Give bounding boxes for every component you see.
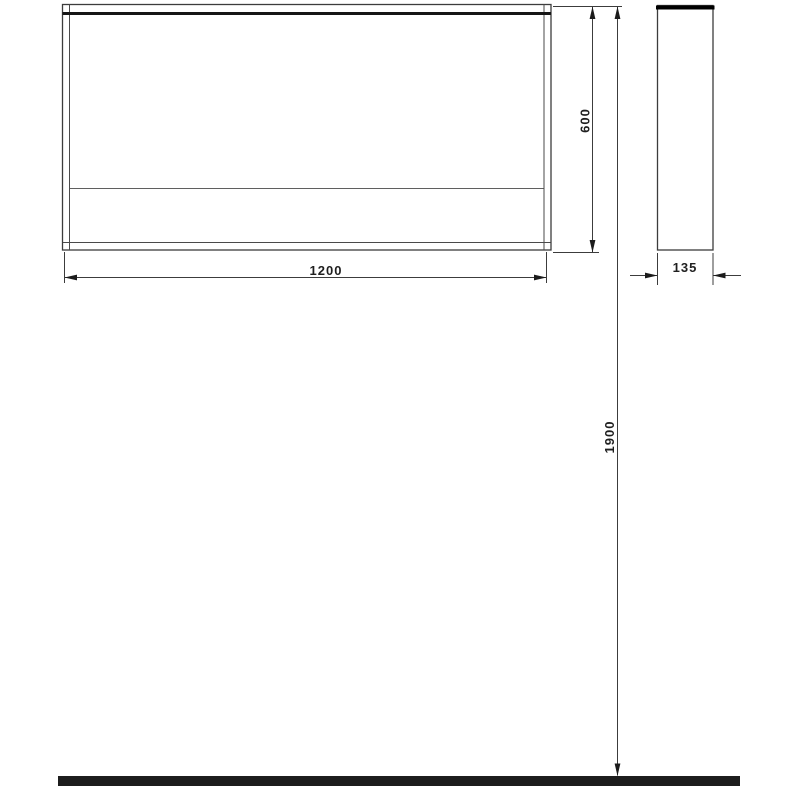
- side-view-outline: [658, 6, 714, 251]
- height-arrow-bottom: [590, 240, 596, 253]
- floor-line: [58, 776, 740, 786]
- height-arrow-top: [590, 7, 596, 20]
- front-view-outline: [63, 5, 552, 251]
- drawing-canvas: 1200 600 135 1900: [0, 0, 800, 800]
- depth-dimension: 135: [630, 253, 741, 285]
- side-view: [656, 6, 715, 251]
- installation-height-arrow-bottom: [615, 764, 621, 777]
- installation-height-dimension: 1900: [602, 7, 620, 777]
- technical-drawing-page: 1200 600 135 1900: [0, 0, 800, 800]
- height-dimension-label: 600: [578, 108, 593, 133]
- width-dimension: 1200: [65, 252, 547, 283]
- height-dimension: 600: [553, 7, 622, 253]
- width-dimension-label: 1200: [310, 263, 343, 278]
- installation-height-dimension-label: 1900: [602, 421, 617, 454]
- front-view: [63, 5, 552, 251]
- width-arrow-right: [534, 275, 547, 281]
- depth-arrow-left: [645, 273, 658, 279]
- depth-arrow-right: [713, 273, 726, 279]
- installation-height-arrow-top: [615, 7, 621, 20]
- depth-dimension-label: 135: [673, 260, 698, 275]
- width-arrow-left: [65, 275, 78, 281]
